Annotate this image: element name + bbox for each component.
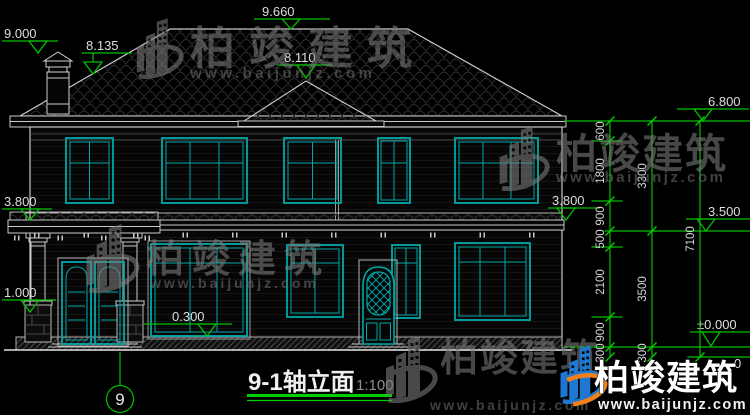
watermark-brand-white: 柏竣建筑 bbox=[594, 358, 738, 398]
elevation-label: 1.000 bbox=[4, 285, 37, 300]
dim-text: 2100 bbox=[595, 269, 607, 295]
dim-text: 3500 bbox=[637, 276, 649, 302]
cad-elevation-canvas: 9.000 8.135 9.660 8.110 3.800 1.000 bbox=[0, 0, 750, 415]
elevation-label: 9.000 bbox=[4, 26, 37, 41]
drawing-title: 9-1轴立面 bbox=[248, 368, 355, 396]
watermark-mid-right: 柏竣建筑 www.baijunjz.com bbox=[487, 126, 728, 194]
dim-text: 500 bbox=[595, 229, 607, 248]
elevation-drawing: 9.000 8.135 9.660 8.110 3.800 1.000 bbox=[0, 0, 750, 415]
elevation-label: 9.660 bbox=[262, 4, 295, 19]
porch-roof-tiles bbox=[10, 212, 158, 220]
elevation-triangle-icon bbox=[702, 332, 720, 346]
watermark-url: www.baijunjz.com bbox=[555, 169, 725, 186]
chimney bbox=[44, 52, 72, 114]
elevation-triangle-icon bbox=[29, 41, 47, 53]
door-lattice-panel bbox=[367, 272, 390, 315]
elevation-label: 3.500 bbox=[708, 204, 741, 219]
watermark-url: www.baijunjz.com bbox=[429, 397, 591, 413]
elevation-label: 3.800 bbox=[552, 193, 585, 208]
elevation-label: 0.300 bbox=[172, 309, 205, 324]
dim-texts-middle: 3300 3500 300 bbox=[637, 163, 649, 362]
axis-grid-marker: 9 bbox=[107, 352, 134, 413]
watermark-url: www.baijunjz.com bbox=[149, 275, 319, 291]
elevation-label: 3.800 bbox=[4, 194, 37, 209]
axis-bubble-number: 9 bbox=[115, 390, 124, 409]
elevation-label: 8.135 bbox=[86, 38, 119, 53]
titleblock: 9-1轴立面 1:100 bbox=[247, 368, 394, 401]
elevation-label: 6.800 bbox=[708, 94, 741, 109]
elevation-triangle-icon bbox=[694, 109, 712, 121]
dim-text: 900 bbox=[595, 206, 607, 225]
elevation-marker-6800: 6.800 bbox=[677, 94, 749, 121]
dim-text: 7100 bbox=[685, 226, 697, 252]
elevation-marker-zero: ±0.000 bbox=[690, 317, 750, 346]
watermark-url-white: www.baijunjz.com bbox=[597, 397, 747, 413]
elevation-label: ±0.000 bbox=[697, 317, 737, 332]
watermark-url: www.baijunjz.com bbox=[189, 65, 375, 82]
elevation-marker-9000: 9.000 bbox=[2, 26, 58, 53]
